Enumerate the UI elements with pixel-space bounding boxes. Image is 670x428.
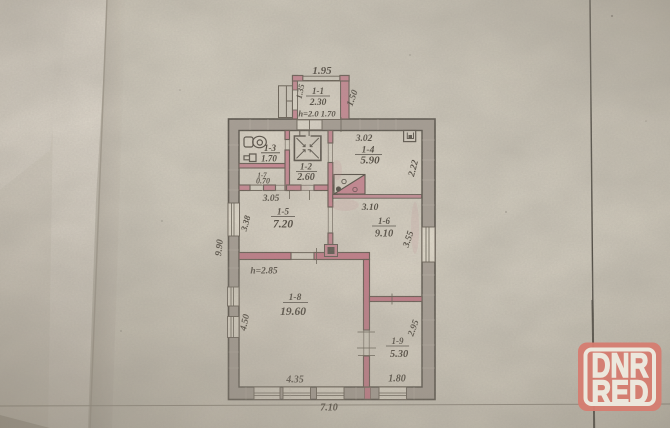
svg-text:RED: RED	[592, 374, 649, 411]
